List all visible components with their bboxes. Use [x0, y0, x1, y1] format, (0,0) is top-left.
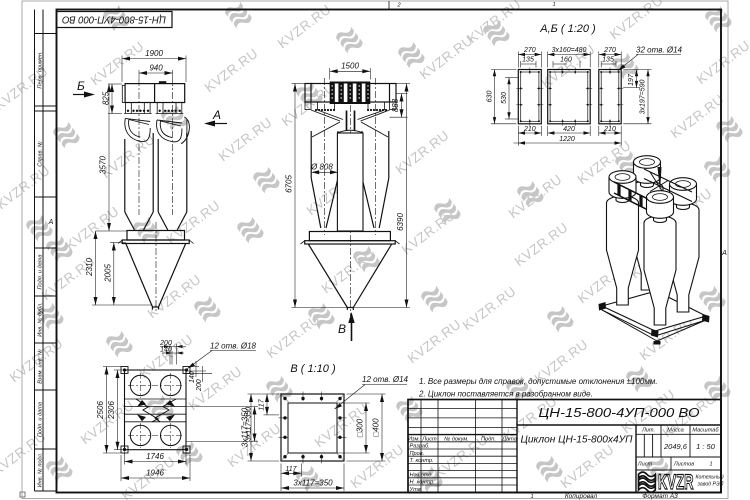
- svg-text:А: А: [48, 219, 54, 226]
- svg-text:2506: 2506: [96, 401, 105, 420]
- svg-text:KVZR.RU: KVZR.RU: [393, 128, 452, 178]
- svg-text:210: 210: [603, 126, 616, 133]
- svg-text:140: 140: [189, 371, 196, 383]
- svg-text:12 отв. Ø18: 12 отв. Ø18: [210, 342, 257, 351]
- svg-text:3х160=480: 3х160=480: [552, 47, 587, 54]
- svg-text:KVZR.RU: KVZR.RU: [558, 442, 617, 492]
- svg-text:Разраб.: Разраб.: [410, 444, 430, 450]
- svg-text:KVZR.RU: KVZR.RU: [216, 115, 275, 165]
- svg-text:KVZR: KVZR: [658, 471, 694, 494]
- svg-text:117: 117: [259, 398, 266, 410]
- svg-text:№ докум.: № докум.: [444, 437, 469, 443]
- svg-text:530: 530: [501, 92, 508, 104]
- svg-text:Листов: Листов: [673, 462, 694, 468]
- svg-text:210: 210: [523, 126, 536, 133]
- svg-text:Масса: Масса: [667, 428, 684, 434]
- svg-text:Копировал: Копировал: [565, 493, 598, 500]
- svg-text:6705: 6705: [285, 175, 294, 193]
- svg-text:3х117=350: 3х117=350: [293, 479, 333, 488]
- svg-text:1 : 50: 1 : 50: [696, 442, 716, 451]
- svg-text:Лист: Лист: [421, 437, 437, 443]
- svg-text:Циклон ЦН-15-800х4УП: Циклон ЦН-15-800х4УП: [521, 434, 633, 446]
- svg-text:Пров.: Пров.: [410, 451, 425, 457]
- svg-text:Взам. инв. №: Взам. инв. №: [38, 349, 44, 384]
- svg-text:1. Все размеры для справок, до: 1. Все размеры для справок, допустимые о…: [419, 377, 658, 386]
- svg-text:1900: 1900: [145, 49, 163, 58]
- svg-text:Дата: Дата: [501, 437, 517, 443]
- svg-text:KVZR.RU: KVZR.RU: [88, 39, 147, 89]
- svg-text:KVZR.RU: KVZR.RU: [405, 317, 464, 367]
- svg-text:32 отв. Ø14: 32 отв. Ø14: [636, 46, 683, 55]
- svg-text:KVZR.RU: KVZR.RU: [0, 163, 53, 213]
- svg-text:Формат А3: Формат А3: [642, 493, 678, 500]
- svg-text:Подп.: Подп.: [481, 437, 496, 443]
- svg-text:Ø 808: Ø 808: [310, 163, 333, 172]
- svg-text:KVZR.RU: KVZR.RU: [99, 132, 158, 182]
- svg-text:2: 2: [396, 3, 401, 9]
- svg-text:Лист: Лист: [637, 462, 653, 468]
- svg-text:1: 1: [552, 2, 555, 8]
- svg-text:3570: 3570: [99, 156, 108, 174]
- svg-text:2306: 2306: [107, 401, 116, 420]
- svg-text:2049,6: 2049,6: [663, 442, 688, 451]
- svg-text:завод РЭП: завод РЭП: [697, 482, 724, 488]
- svg-text:117: 117: [285, 466, 297, 473]
- svg-text:□300: □300: [356, 418, 365, 437]
- svg-text:Нач.отд.: Нач.отд.: [410, 473, 434, 479]
- svg-text:А: А: [721, 250, 727, 257]
- svg-text:□400: □400: [372, 418, 381, 437]
- svg-text:270: 270: [603, 47, 616, 54]
- svg-text:12 отв. Ø14: 12 отв. Ø14: [362, 375, 409, 384]
- svg-text:135: 135: [522, 57, 534, 64]
- svg-text:940: 940: [149, 64, 163, 73]
- svg-text:160: 160: [560, 57, 572, 64]
- svg-text:2. Циклон поставляется в разоб: 2. Циклон поставляется в разобранном вид…: [418, 390, 593, 399]
- svg-text:Утв.: Утв.: [409, 487, 423, 493]
- svg-text:KVZR.RU: KVZR.RU: [417, 33, 476, 83]
- svg-text:KVZR.RU: KVZR.RU: [512, 220, 571, 270]
- svg-text:Лит.: Лит.: [641, 428, 655, 434]
- svg-text:Т. контр.: Т. контр.: [410, 458, 434, 464]
- svg-text:Б: Б: [77, 79, 85, 93]
- svg-text:ЦН-15-800-4УП-000 ВО: ЦН-15-800-4УП-000 ВО: [62, 14, 166, 26]
- svg-text:В ( 1:10 ): В ( 1:10 ): [290, 363, 336, 375]
- svg-text:630: 630: [487, 91, 494, 103]
- svg-text:В: В: [338, 322, 346, 336]
- svg-text:Изм.: Изм.: [408, 437, 420, 443]
- svg-text:1946: 1946: [146, 469, 164, 478]
- svg-text:135: 135: [602, 57, 614, 64]
- svg-text:Инв. № дубл.: Инв. № дубл.: [38, 302, 44, 336]
- svg-text:200: 200: [196, 379, 203, 392]
- svg-text:197: 197: [628, 73, 635, 86]
- svg-text:1: 1: [530, 494, 533, 500]
- svg-text:KVZR.RU: KVZR.RU: [607, 0, 666, 42]
- svg-text:А: А: [212, 108, 221, 122]
- svg-text:2310: 2310: [85, 258, 94, 277]
- svg-text:KVZR.RU: KVZR.RU: [506, 172, 565, 222]
- svg-text:Инв. № подл.: Инв. № подл.: [38, 453, 44, 488]
- svg-text:KVZR.RU: KVZR.RU: [202, 46, 261, 96]
- svg-text:1746: 1746: [146, 452, 164, 461]
- svg-text:KVZR.RU: KVZR.RU: [668, 92, 727, 142]
- svg-text:6390: 6390: [396, 213, 405, 231]
- svg-text:1: 1: [709, 462, 712, 468]
- svg-text:1220: 1220: [559, 136, 575, 143]
- svg-text:KVZR.RU: KVZR.RU: [145, 272, 204, 322]
- svg-text:KVZR.RU: KVZR.RU: [460, 284, 519, 334]
- svg-text:3х197=590: 3х197=590: [640, 79, 647, 114]
- svg-text:Масштаб: Масштаб: [692, 428, 719, 434]
- svg-text:270: 270: [523, 47, 536, 54]
- svg-text:2005: 2005: [103, 264, 112, 283]
- svg-text:KVZR.RU: KVZR.RU: [348, 442, 407, 492]
- svg-text:Н. контр.: Н. контр.: [410, 480, 435, 486]
- svg-text:3х117=350: 3х117=350: [241, 407, 250, 447]
- svg-text:А,Б ( 1:20 ): А,Б ( 1:20 ): [539, 23, 596, 35]
- svg-text:Подп. и дата: Подп. и дата: [38, 402, 44, 437]
- svg-text:Справ. №: Справ. №: [38, 141, 44, 166]
- svg-text:Подп. и дата: Подп. и дата: [38, 254, 44, 289]
- svg-text:Котельный: Котельный: [696, 474, 724, 481]
- svg-text:140: 140: [160, 347, 172, 354]
- svg-text:888: 888: [391, 98, 400, 112]
- svg-text:1500: 1500: [341, 62, 359, 71]
- svg-text:Перв. примен.: Перв. примен.: [38, 51, 44, 88]
- svg-text:ЦН-15-800-4УП-000 ВО: ЦН-15-800-4УП-000 ВО: [539, 405, 700, 420]
- svg-text:420: 420: [563, 126, 575, 133]
